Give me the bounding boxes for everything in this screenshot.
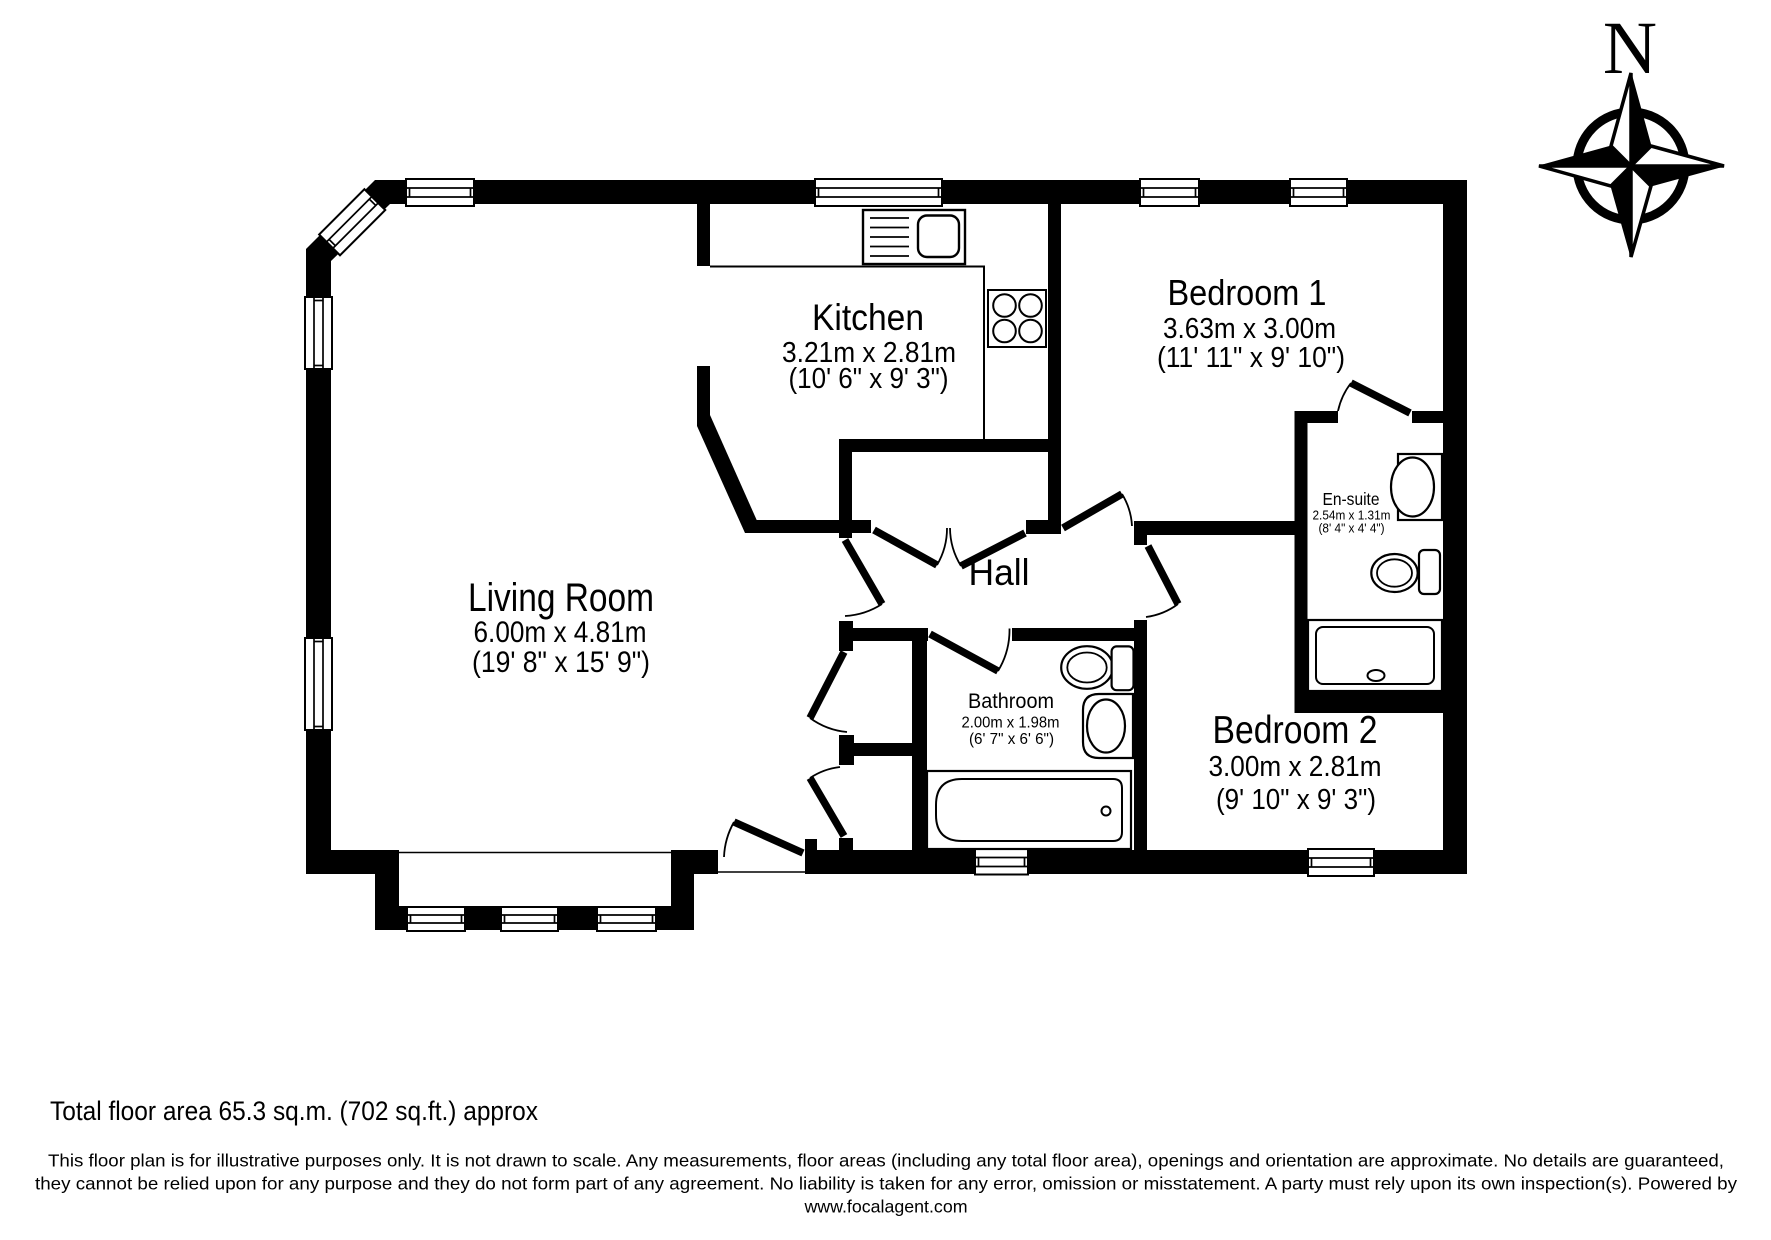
svg-text:Bedroom 2: Bedroom 2 xyxy=(1213,709,1378,752)
svg-text:Kitchen: Kitchen xyxy=(812,296,924,338)
svg-text:2.00m x 1.98m: 2.00m x 1.98m xyxy=(962,715,1060,732)
svg-text:(11' 11" x 9' 10"): (11' 11" x 9' 10") xyxy=(1157,342,1345,374)
svg-text:3.00m x 2.81m: 3.00m x 2.81m xyxy=(1209,751,1382,783)
svg-text:Total floor area 65.3 sq.m. (7: Total floor area 65.3 sq.m. (702 sq.ft.)… xyxy=(50,1096,538,1126)
svg-text:(10' 6" x 9' 3"): (10' 6" x 9' 3") xyxy=(789,363,949,395)
svg-text:Hall: Hall xyxy=(969,552,1030,593)
svg-text:3.63m x 3.00m: 3.63m x 3.00m xyxy=(1163,313,1336,345)
svg-text:(6' 7" x 6' 6"): (6' 7" x 6' 6") xyxy=(969,731,1054,748)
svg-text:they cannot be relied upon for: they cannot be relied upon for any purpo… xyxy=(35,1174,1737,1194)
svg-text:6.00m x 4.81m: 6.00m x 4.81m xyxy=(474,616,647,649)
svg-text:This floor plan is for illustr: This floor plan is for illustrative purp… xyxy=(48,1151,1724,1171)
svg-text:(9' 10" x 9' 3"): (9' 10" x 9' 3") xyxy=(1216,784,1376,816)
svg-text:(19' 8" x 15' 9"): (19' 8" x 15' 9") xyxy=(472,646,650,679)
svg-text:En-suite: En-suite xyxy=(1323,489,1380,509)
svg-text:Bedroom 1: Bedroom 1 xyxy=(1168,272,1327,313)
svg-text:(8' 4" x 4' 4"): (8' 4" x 4' 4") xyxy=(1319,521,1385,536)
svg-text:Living Room: Living Room xyxy=(468,576,654,620)
svg-text:Bathroom: Bathroom xyxy=(968,689,1054,713)
svg-text:www.focalagent.com: www.focalagent.com xyxy=(803,1197,967,1217)
